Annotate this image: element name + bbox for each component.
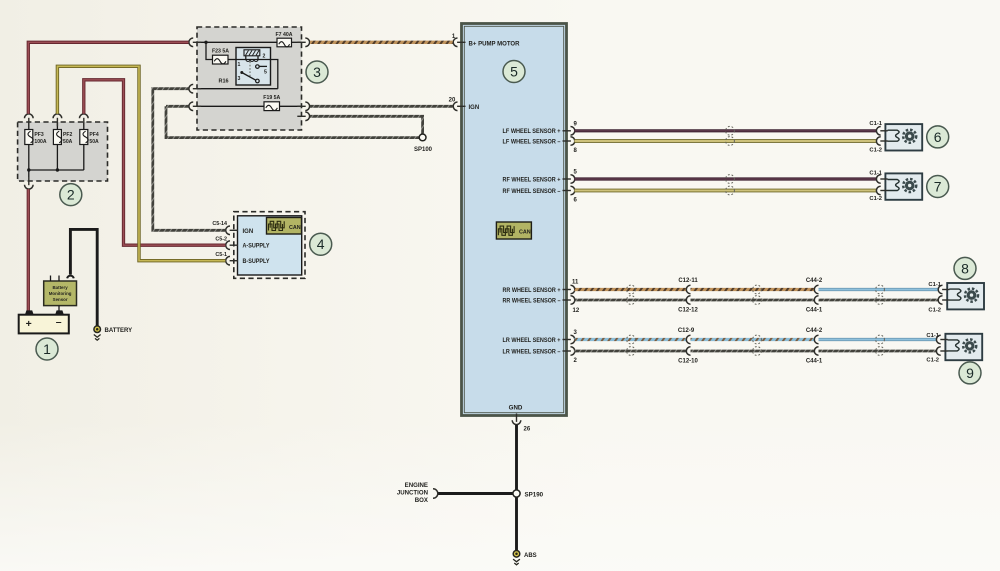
- svg-text:C1-2: C1-2: [869, 147, 882, 153]
- svg-text:B-SUPPLY: B-SUPPLY: [243, 259, 270, 265]
- svg-text:26: 26: [524, 427, 531, 433]
- svg-text:C1-1: C1-1: [928, 282, 941, 288]
- svg-text:BATTERY: BATTERY: [105, 328, 133, 334]
- svg-text:C12-9: C12-9: [678, 328, 695, 334]
- svg-text:BOX: BOX: [415, 497, 429, 504]
- svg-text:C44-1: C44-1: [806, 308, 823, 314]
- svg-text:50A: 50A: [63, 139, 73, 145]
- svg-text:RR WHEEL SENSOR +: RR WHEEL SENSOR +: [503, 288, 561, 294]
- svg-text:ABS: ABS: [524, 553, 537, 559]
- svg-text:C12-10: C12-10: [678, 359, 698, 365]
- svg-text:C1-2: C1-2: [928, 307, 941, 313]
- svg-text:PF3: PF3: [34, 132, 44, 138]
- svg-text:SP100: SP100: [414, 147, 433, 153]
- svg-text:CAN: CAN: [519, 230, 531, 236]
- svg-text:–: –: [56, 316, 62, 328]
- svg-text:1: 1: [238, 62, 241, 68]
- svg-text:5: 5: [510, 64, 518, 80]
- svg-text:C1-1: C1-1: [869, 121, 882, 127]
- svg-text:PF2: PF2: [63, 132, 73, 138]
- svg-text:C12-11: C12-11: [678, 278, 698, 284]
- svg-text:C12-12: C12-12: [678, 308, 698, 314]
- svg-text:F7 40A: F7 40A: [275, 32, 292, 38]
- svg-text:C44-2: C44-2: [806, 278, 823, 284]
- svg-text:50A: 50A: [89, 139, 99, 145]
- svg-text:A-SUPPLY: A-SUPPLY: [243, 244, 270, 250]
- svg-text:7: 7: [934, 179, 942, 195]
- svg-text:6: 6: [934, 129, 942, 145]
- svg-text:100A: 100A: [34, 139, 46, 145]
- svg-text:LF WHEEL SENSOR +: LF WHEEL SENSOR +: [503, 129, 561, 135]
- svg-text:+: +: [26, 318, 32, 330]
- svg-text:IGN: IGN: [243, 229, 254, 235]
- svg-text:C5-2: C5-2: [215, 236, 227, 242]
- svg-text:C1-1: C1-1: [926, 333, 939, 339]
- svg-text:LR WHEEL SENSOR +: LR WHEEL SENSOR +: [503, 338, 561, 344]
- svg-text:12: 12: [573, 308, 580, 314]
- svg-text:1: 1: [43, 341, 51, 357]
- svg-text:Sensor: Sensor: [53, 297, 68, 302]
- svg-text:SP190: SP190: [525, 491, 544, 498]
- svg-text:ENGINE: ENGINE: [405, 482, 428, 489]
- svg-text:RF WHEEL SENSOR –: RF WHEEL SENSOR –: [503, 189, 562, 195]
- svg-text:C1-2: C1-2: [869, 196, 882, 202]
- svg-text:2: 2: [263, 54, 266, 60]
- svg-text:CAN: CAN: [289, 225, 301, 231]
- svg-text:F19 5A: F19 5A: [263, 95, 280, 101]
- svg-text:9: 9: [966, 365, 974, 381]
- svg-text:C1-2: C1-2: [926, 358, 939, 364]
- svg-text:JUNCTION: JUNCTION: [397, 490, 428, 497]
- svg-text:8: 8: [961, 260, 969, 276]
- svg-text:11: 11: [572, 280, 579, 286]
- svg-text:IGN: IGN: [469, 105, 480, 111]
- svg-text:3: 3: [238, 76, 241, 82]
- svg-text:PF4: PF4: [89, 132, 99, 138]
- svg-text:F23 5A: F23 5A: [212, 49, 229, 55]
- svg-text:C44-1: C44-1: [806, 359, 823, 365]
- svg-text:RF WHEEL SENSOR +: RF WHEEL SENSOR +: [503, 177, 561, 183]
- svg-text:GND: GND: [509, 405, 523, 412]
- svg-text:20: 20: [449, 98, 456, 104]
- svg-text:C5-1: C5-1: [215, 252, 227, 258]
- svg-text:Battery: Battery: [53, 285, 69, 290]
- svg-text:R16: R16: [219, 79, 229, 85]
- svg-text:C5-14: C5-14: [212, 221, 227, 227]
- svg-text:C1-1: C1-1: [869, 170, 882, 176]
- svg-text:C44-2: C44-2: [806, 328, 823, 334]
- svg-text:4: 4: [317, 236, 325, 252]
- svg-text:3: 3: [313, 64, 321, 80]
- svg-text:LR WHEEL SENSOR –: LR WHEEL SENSOR –: [503, 349, 562, 355]
- svg-text:Monitoring: Monitoring: [49, 291, 72, 296]
- svg-text:B+ PUMP MOTOR: B+ PUMP MOTOR: [469, 42, 521, 48]
- svg-text:5: 5: [264, 70, 267, 76]
- svg-text:LF WHEEL SENSOR –: LF WHEEL SENSOR –: [503, 139, 562, 145]
- svg-text:RR WHEEL SENSOR –: RR WHEEL SENSOR –: [503, 298, 562, 304]
- svg-text:2: 2: [67, 187, 75, 203]
